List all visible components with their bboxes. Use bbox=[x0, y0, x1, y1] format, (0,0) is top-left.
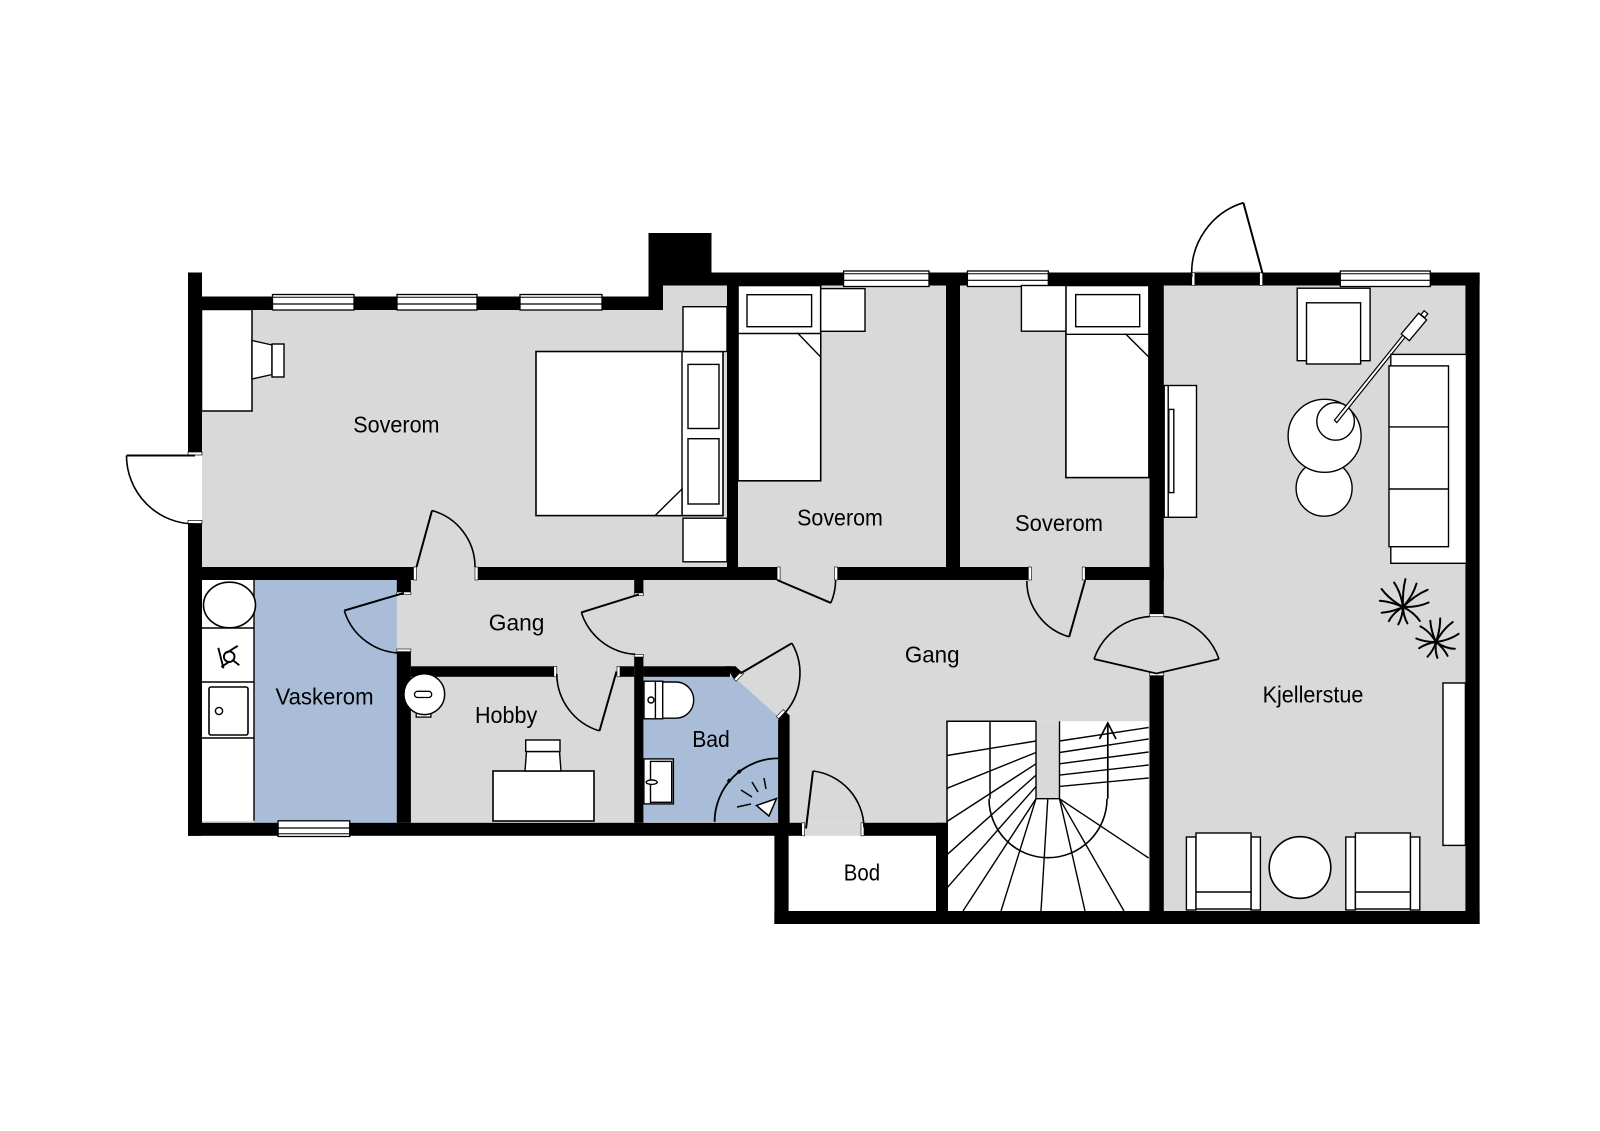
svg-text:Kjellerstue: Kjellerstue bbox=[1263, 682, 1364, 708]
svg-text:Soverom: Soverom bbox=[797, 505, 883, 531]
svg-text:Bad: Bad bbox=[692, 726, 730, 752]
svg-text:Soverom: Soverom bbox=[353, 412, 439, 438]
svg-text:Soverom: Soverom bbox=[1015, 510, 1103, 536]
svg-text:Vaskerom: Vaskerom bbox=[275, 684, 373, 710]
svg-text:Bod: Bod bbox=[844, 859, 880, 885]
svg-text:Gang: Gang bbox=[905, 641, 960, 667]
svg-text:Hobby: Hobby bbox=[475, 702, 538, 728]
svg-text:Gang: Gang bbox=[489, 610, 545, 636]
